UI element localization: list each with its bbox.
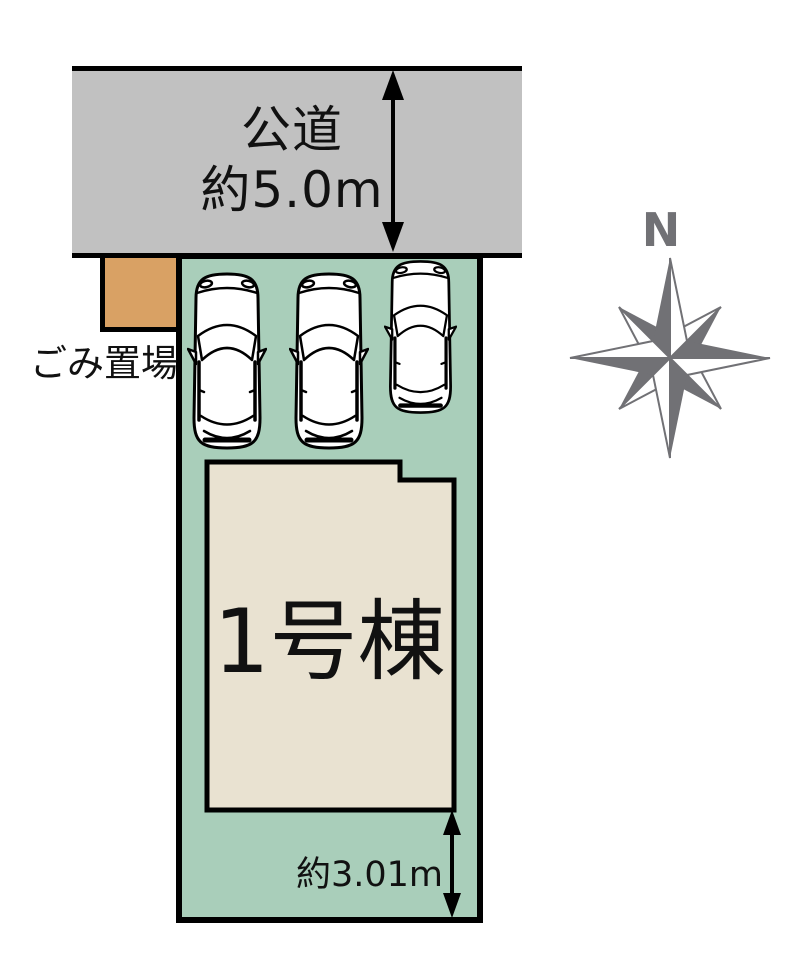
- site-plan-canvas: 公道 約5.0m ごみ置場: [0, 0, 800, 977]
- building-label: 1号棟: [203, 592, 456, 692]
- garbage-area: [100, 253, 181, 332]
- garbage-area-label: ごみ置場: [28, 333, 180, 387]
- road-width-dimension-arrow-icon: [375, 68, 411, 254]
- compass-rose-icon: N: [555, 200, 785, 470]
- south-setback-dimension-label: 約3.01m: [290, 846, 443, 897]
- parked-car-icon: [289, 270, 369, 452]
- compass-north-label: N: [642, 203, 681, 257]
- parked-car-icon: [384, 258, 457, 416]
- parked-car-icon: [187, 270, 267, 452]
